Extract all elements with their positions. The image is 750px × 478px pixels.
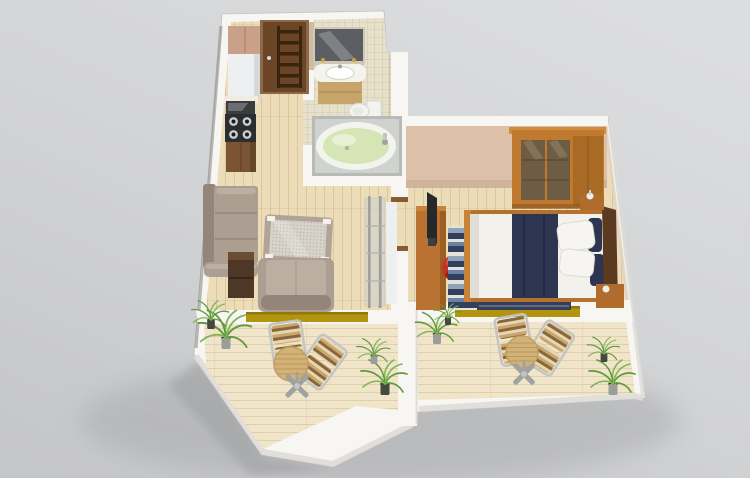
glass-shelf-unit: [365, 196, 397, 308]
entry-door: [260, 20, 309, 94]
double-bed: [464, 206, 618, 302]
mirror: [314, 28, 364, 66]
pillow-white: [559, 248, 596, 277]
screenshot-canvas: [0, 0, 750, 478]
side-table: [228, 252, 254, 298]
gas-cooktop: [225, 114, 256, 142]
bed-blanket: [512, 214, 558, 298]
dresser: [596, 284, 624, 308]
floor-plan-render: [0, 0, 750, 478]
pillow-white: [556, 220, 596, 253]
bathtub: [312, 116, 402, 176]
door-handle: [267, 56, 271, 60]
coffee-table: [263, 214, 333, 263]
washbasin-vanity: [314, 64, 366, 104]
armchair: [258, 258, 334, 312]
tv: [427, 192, 437, 246]
terrace-divider-wall: [398, 308, 417, 426]
